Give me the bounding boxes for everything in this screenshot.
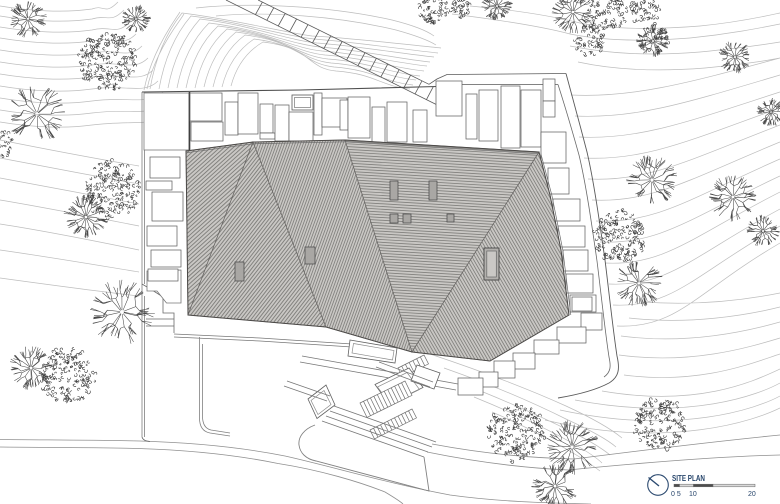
svg-text:0 5: 0 5 — [671, 491, 681, 498]
svg-text:SITE PLAN: SITE PLAN — [672, 474, 705, 483]
svg-text:20: 20 — [748, 491, 756, 498]
svg-text:10: 10 — [689, 491, 697, 498]
